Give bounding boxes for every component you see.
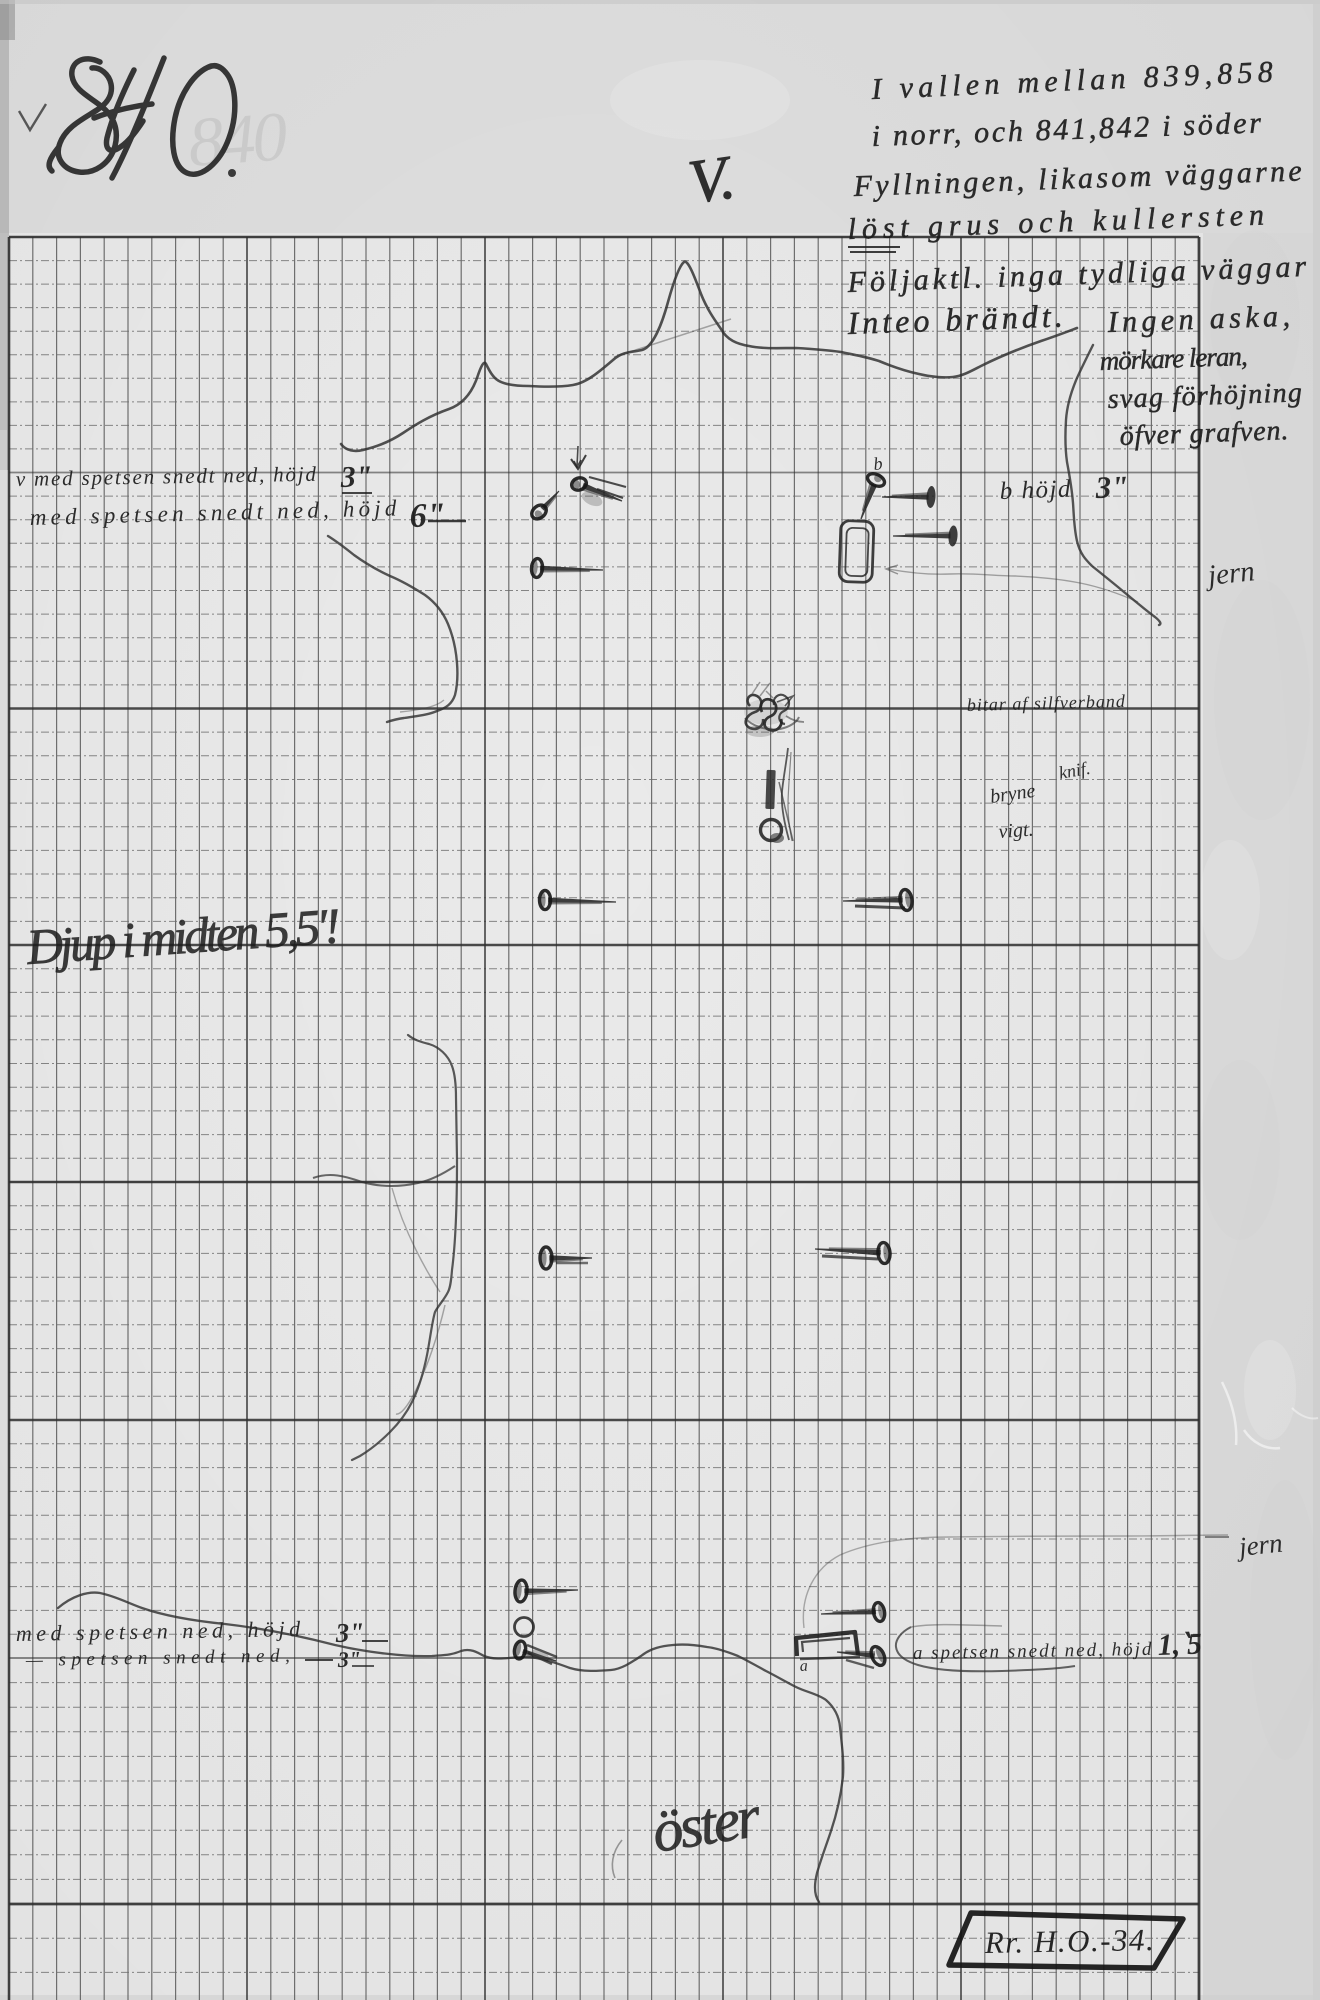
svg-text:3": 3" — [339, 460, 373, 494]
svg-text:Ingen aska,: Ingen aska, — [1106, 300, 1295, 340]
svg-text:Rr. H.O.-34.: Rr. H.O.-34. — [984, 1922, 1156, 1960]
svg-text:3": 3" — [334, 1617, 365, 1648]
svg-text:b: b — [873, 453, 884, 474]
svg-text:jern: jern — [1202, 555, 1256, 592]
svg-text:vigt.: vigt. — [998, 819, 1034, 843]
svg-text:öfver grafven.: öfver grafven. — [1119, 415, 1290, 452]
svg-text:V.: V. — [684, 143, 738, 217]
svg-text:840: 840 — [186, 98, 290, 182]
svg-text:3": 3" — [1094, 469, 1129, 505]
svg-text:1,‵5: 1,‵5 — [1157, 1627, 1202, 1662]
svg-text:bitar af silfverband: bitar af silfverband — [967, 691, 1126, 715]
svg-text:med spetsen ned, höjd: med spetsen ned, höjd — [16, 1616, 305, 1646]
svg-text:jern: jern — [1235, 1528, 1284, 1563]
svg-text:6": 6" — [409, 497, 446, 535]
svg-text:a spetsen snedt ned, höjd: a spetsen snedt ned, höjd — [913, 1639, 1154, 1664]
svg-text:b höjd: b höjd — [999, 475, 1072, 505]
svg-text:a: a — [799, 1658, 808, 1675]
svg-text:Inteo brändt.: Inteo brändt. — [846, 297, 1067, 341]
svg-text:mörkare leran,: mörkare leran, — [1099, 341, 1247, 376]
